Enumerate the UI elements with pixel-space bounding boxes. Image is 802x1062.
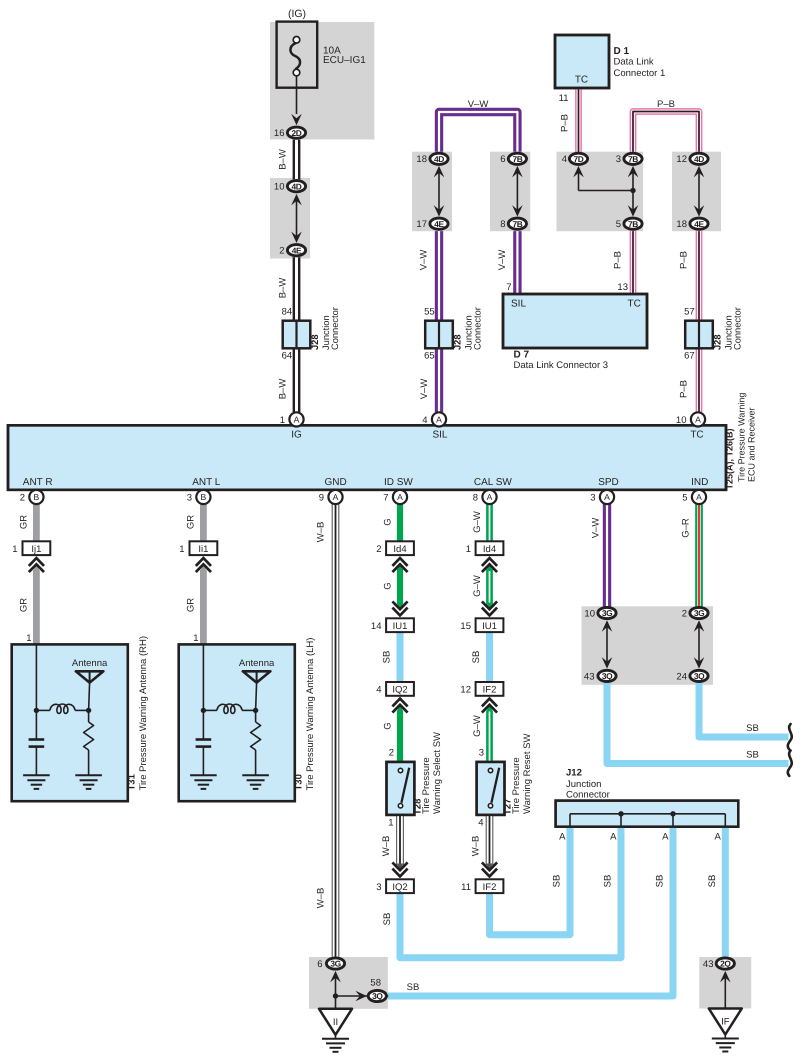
svg-text:43: 43	[584, 671, 595, 682]
svg-text:A: A	[604, 492, 610, 502]
svg-text:4D: 4D	[694, 154, 704, 164]
svg-text:G–R: G–R	[681, 518, 692, 538]
svg-text:3G: 3G	[602, 608, 612, 618]
svg-text:B: B	[201, 492, 207, 502]
svg-text:Connector 1: Connector 1	[614, 68, 666, 79]
svg-text:18: 18	[676, 219, 687, 230]
svg-text:IG: IG	[291, 429, 302, 440]
svg-text:1: 1	[26, 633, 31, 644]
svg-text:43: 43	[703, 959, 714, 970]
svg-text:IF2: IF2	[483, 882, 497, 893]
svg-text:SB: SB	[655, 875, 666, 888]
svg-text:57: 57	[684, 307, 695, 318]
svg-text:T31: T31	[126, 773, 137, 790]
svg-text:Id4: Id4	[393, 544, 406, 555]
svg-text:6: 6	[317, 959, 322, 970]
svg-text:TC: TC	[575, 74, 588, 85]
svg-text:55: 55	[424, 307, 435, 318]
svg-text:A: A	[397, 492, 403, 502]
svg-text:A: A	[695, 415, 701, 425]
svg-text:3Q: 3Q	[602, 671, 613, 681]
svg-text:Tire Pressure Warning Antenna: Tire Pressure Warning Antenna (RH)	[138, 636, 149, 791]
svg-text:Junction: Junction	[566, 779, 601, 790]
svg-text:6: 6	[500, 154, 505, 165]
svg-text:SIL: SIL	[432, 429, 447, 440]
svg-text:J28: J28	[713, 334, 723, 350]
svg-text:1: 1	[280, 415, 285, 426]
svg-text:9: 9	[319, 492, 324, 503]
svg-text:13: 13	[617, 282, 628, 293]
svg-text:7B: 7B	[512, 219, 522, 229]
svg-text:IQ2: IQ2	[392, 685, 407, 696]
svg-text:64: 64	[282, 351, 293, 362]
svg-text:IF: IF	[721, 1017, 730, 1028]
svg-text:G–W: G–W	[472, 511, 483, 533]
svg-text:1: 1	[388, 818, 393, 829]
svg-text:B–W: B–W	[278, 149, 289, 170]
svg-text:2Q: 2Q	[720, 959, 731, 969]
svg-text:14: 14	[371, 621, 382, 632]
svg-text:4: 4	[478, 818, 483, 829]
svg-text:SIL: SIL	[511, 299, 526, 310]
svg-text:7: 7	[383, 492, 388, 503]
svg-text:P–B: P–B	[679, 380, 690, 398]
svg-text:GR: GR	[186, 598, 197, 612]
svg-text:ID SW: ID SW	[384, 477, 413, 488]
svg-text:4D: 4D	[434, 154, 444, 164]
svg-text:3: 3	[479, 748, 484, 759]
svg-text:Tire Pressure: Tire Pressure	[421, 757, 432, 814]
svg-text:P–B: P–B	[613, 251, 624, 269]
svg-text:G: G	[383, 518, 394, 525]
svg-text:(IG): (IG)	[288, 8, 306, 20]
svg-text:11: 11	[461, 882, 471, 893]
svg-text:1: 1	[179, 544, 184, 555]
svg-text:SB: SB	[746, 750, 759, 761]
svg-text:W–B: W–B	[316, 888, 327, 909]
svg-text:SB: SB	[382, 651, 393, 664]
svg-text:B–W: B–W	[278, 379, 289, 400]
svg-text:Connector: Connector	[330, 307, 340, 350]
svg-text:Ii1: Ii1	[198, 544, 208, 555]
svg-text:Connector: Connector	[472, 307, 482, 350]
svg-text:V–W: V–W	[419, 250, 430, 271]
svg-text:SB: SB	[407, 982, 420, 993]
svg-text:T30: T30	[293, 774, 304, 790]
svg-text:SB: SB	[552, 875, 563, 888]
svg-text:3G: 3G	[694, 608, 704, 618]
svg-text:G–W: G–W	[472, 715, 483, 737]
svg-text:18: 18	[416, 154, 427, 165]
svg-text:58: 58	[370, 977, 381, 988]
svg-text:P–B: P–B	[657, 99, 675, 110]
svg-text:A: A	[487, 492, 493, 502]
svg-text:GND: GND	[324, 477, 346, 488]
svg-text:Tire Pressure: Tire Pressure	[511, 757, 522, 814]
svg-text:ECU–IG1: ECU–IG1	[323, 55, 366, 66]
svg-text:IU1: IU1	[482, 621, 497, 632]
svg-text:4: 4	[562, 154, 567, 165]
svg-text:3G: 3G	[330, 959, 340, 969]
svg-text:12: 12	[676, 154, 687, 165]
svg-text:A: A	[436, 415, 442, 425]
svg-text:GR: GR	[19, 598, 30, 612]
svg-text:A: A	[696, 492, 702, 502]
svg-text:Data Link Connector 3: Data Link Connector 3	[514, 360, 609, 371]
svg-text:A: A	[294, 415, 300, 425]
svg-text:3Q: 3Q	[694, 671, 705, 681]
svg-text:84: 84	[282, 307, 293, 318]
svg-text:Tire Pressure Warning Antenna: Tire Pressure Warning Antenna (LH)	[305, 638, 316, 791]
svg-text:16: 16	[274, 128, 285, 139]
svg-text:10: 10	[584, 608, 595, 619]
svg-text:8: 8	[500, 219, 505, 230]
svg-text:V–W: V–W	[419, 379, 430, 400]
svg-text:SB: SB	[707, 875, 718, 888]
svg-text:W–B: W–B	[471, 836, 482, 857]
svg-text:P–B: P–B	[679, 251, 690, 269]
svg-text:B: B	[34, 492, 40, 502]
svg-text:D 1: D 1	[614, 46, 630, 57]
svg-text:SB: SB	[746, 723, 759, 734]
svg-text:1: 1	[466, 544, 471, 555]
svg-text:4E: 4E	[694, 219, 704, 229]
svg-text:V–W: V–W	[497, 250, 508, 271]
svg-text:3: 3	[376, 882, 381, 893]
svg-text:SB: SB	[382, 913, 393, 926]
svg-text:Warning Select SW: Warning Select SW	[432, 732, 443, 814]
svg-text:P–B: P–B	[560, 114, 571, 132]
svg-text:G–W: G–W	[472, 575, 483, 597]
svg-text:J28: J28	[453, 334, 463, 350]
svg-text:W–B: W–B	[381, 836, 392, 857]
svg-text:ANT L: ANT L	[192, 477, 221, 488]
svg-text:7B: 7B	[512, 154, 522, 164]
svg-text:7D: 7D	[574, 154, 584, 164]
svg-text:TC: TC	[690, 429, 703, 440]
svg-text:A: A	[610, 832, 617, 843]
svg-text:5: 5	[682, 492, 687, 503]
svg-text:IND: IND	[691, 477, 708, 488]
svg-text:4D: 4D	[292, 181, 302, 191]
svg-text:B–W: B–W	[278, 278, 289, 299]
svg-text:4: 4	[422, 415, 427, 426]
svg-text:A: A	[333, 492, 339, 502]
svg-text:Connector: Connector	[732, 307, 742, 350]
svg-text:T25(A), T26(B): T25(A), T26(B)	[725, 428, 735, 489]
svg-text:3: 3	[187, 492, 192, 503]
svg-text:SB: SB	[603, 875, 614, 888]
svg-text:Tire Pressure Warning: Tire Pressure Warning	[737, 393, 747, 482]
svg-text:GR: GR	[19, 515, 30, 529]
svg-text:24: 24	[676, 671, 687, 682]
svg-text:3: 3	[590, 492, 595, 503]
svg-text:V–W: V–W	[591, 518, 602, 539]
svg-text:Connector: Connector	[566, 790, 610, 801]
svg-text:4E: 4E	[292, 245, 302, 255]
svg-text:3Q: 3Q	[372, 991, 383, 1001]
svg-text:ANT R: ANT R	[23, 477, 53, 488]
svg-text:G: G	[383, 722, 394, 729]
svg-text:SPD: SPD	[598, 477, 619, 488]
svg-text:4E: 4E	[434, 219, 444, 229]
svg-text:67: 67	[684, 351, 695, 362]
svg-text:2: 2	[389, 748, 394, 759]
svg-text:ECU and Receiver: ECU and Receiver	[747, 407, 757, 482]
svg-text:IF2: IF2	[483, 685, 497, 696]
svg-text:A: A	[559, 832, 566, 843]
svg-text:IU1: IU1	[393, 621, 408, 632]
svg-text:Id4: Id4	[483, 544, 496, 555]
svg-text:7: 7	[506, 282, 511, 293]
svg-text:2: 2	[682, 608, 687, 619]
svg-text:15: 15	[460, 621, 471, 632]
svg-text:4: 4	[376, 685, 381, 696]
svg-text:D 7: D 7	[514, 350, 530, 361]
svg-text:Antenna: Antenna	[72, 658, 108, 669]
svg-text:2: 2	[279, 246, 284, 257]
svg-text:8: 8	[473, 492, 478, 503]
svg-text:Antenna: Antenna	[239, 658, 275, 669]
svg-text:J28: J28	[310, 334, 320, 350]
svg-text:10: 10	[676, 415, 687, 426]
svg-text:II: II	[333, 1017, 338, 1028]
svg-text:17: 17	[416, 219, 427, 230]
svg-text:65: 65	[424, 351, 435, 362]
svg-text:CAL SW: CAL SW	[474, 477, 513, 488]
svg-text:1: 1	[12, 544, 17, 555]
svg-text:2D: 2D	[292, 128, 302, 138]
svg-text:V–W: V–W	[468, 99, 489, 110]
svg-text:11: 11	[559, 93, 569, 104]
svg-text:J12: J12	[566, 768, 582, 779]
svg-text:TC: TC	[628, 299, 641, 310]
svg-text:A: A	[714, 832, 721, 843]
svg-text:7B: 7B	[628, 219, 638, 229]
svg-text:SB: SB	[471, 651, 482, 664]
svg-text:Ij1: Ij1	[31, 544, 41, 555]
svg-text:G: G	[383, 582, 394, 589]
svg-text:10: 10	[274, 182, 285, 193]
svg-text:7B: 7B	[628, 154, 638, 164]
svg-text:1: 1	[193, 633, 198, 644]
svg-text:2: 2	[20, 492, 25, 503]
svg-text:GR: GR	[186, 515, 197, 529]
svg-text:12: 12	[460, 685, 471, 696]
svg-text:2: 2	[376, 544, 381, 555]
svg-text:Data Link: Data Link	[614, 56, 654, 67]
svg-text:Warning Reset SW: Warning Reset SW	[522, 734, 533, 814]
svg-text:3: 3	[616, 154, 621, 165]
svg-text:5: 5	[616, 219, 621, 230]
svg-text:W–B: W–B	[316, 522, 327, 543]
svg-text:IQ2: IQ2	[392, 882, 407, 893]
svg-text:A: A	[662, 832, 669, 843]
